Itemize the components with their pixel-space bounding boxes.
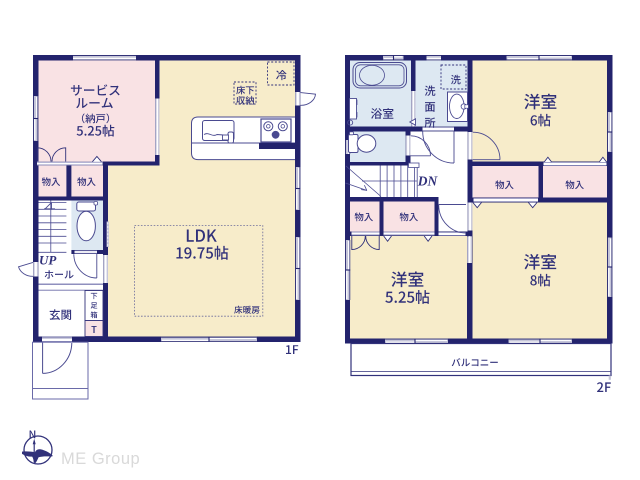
svg-text:ME Group: ME Group bbox=[61, 450, 140, 468]
svg-text:DN: DN bbox=[417, 174, 439, 189]
svg-text:UP: UP bbox=[39, 253, 57, 268]
